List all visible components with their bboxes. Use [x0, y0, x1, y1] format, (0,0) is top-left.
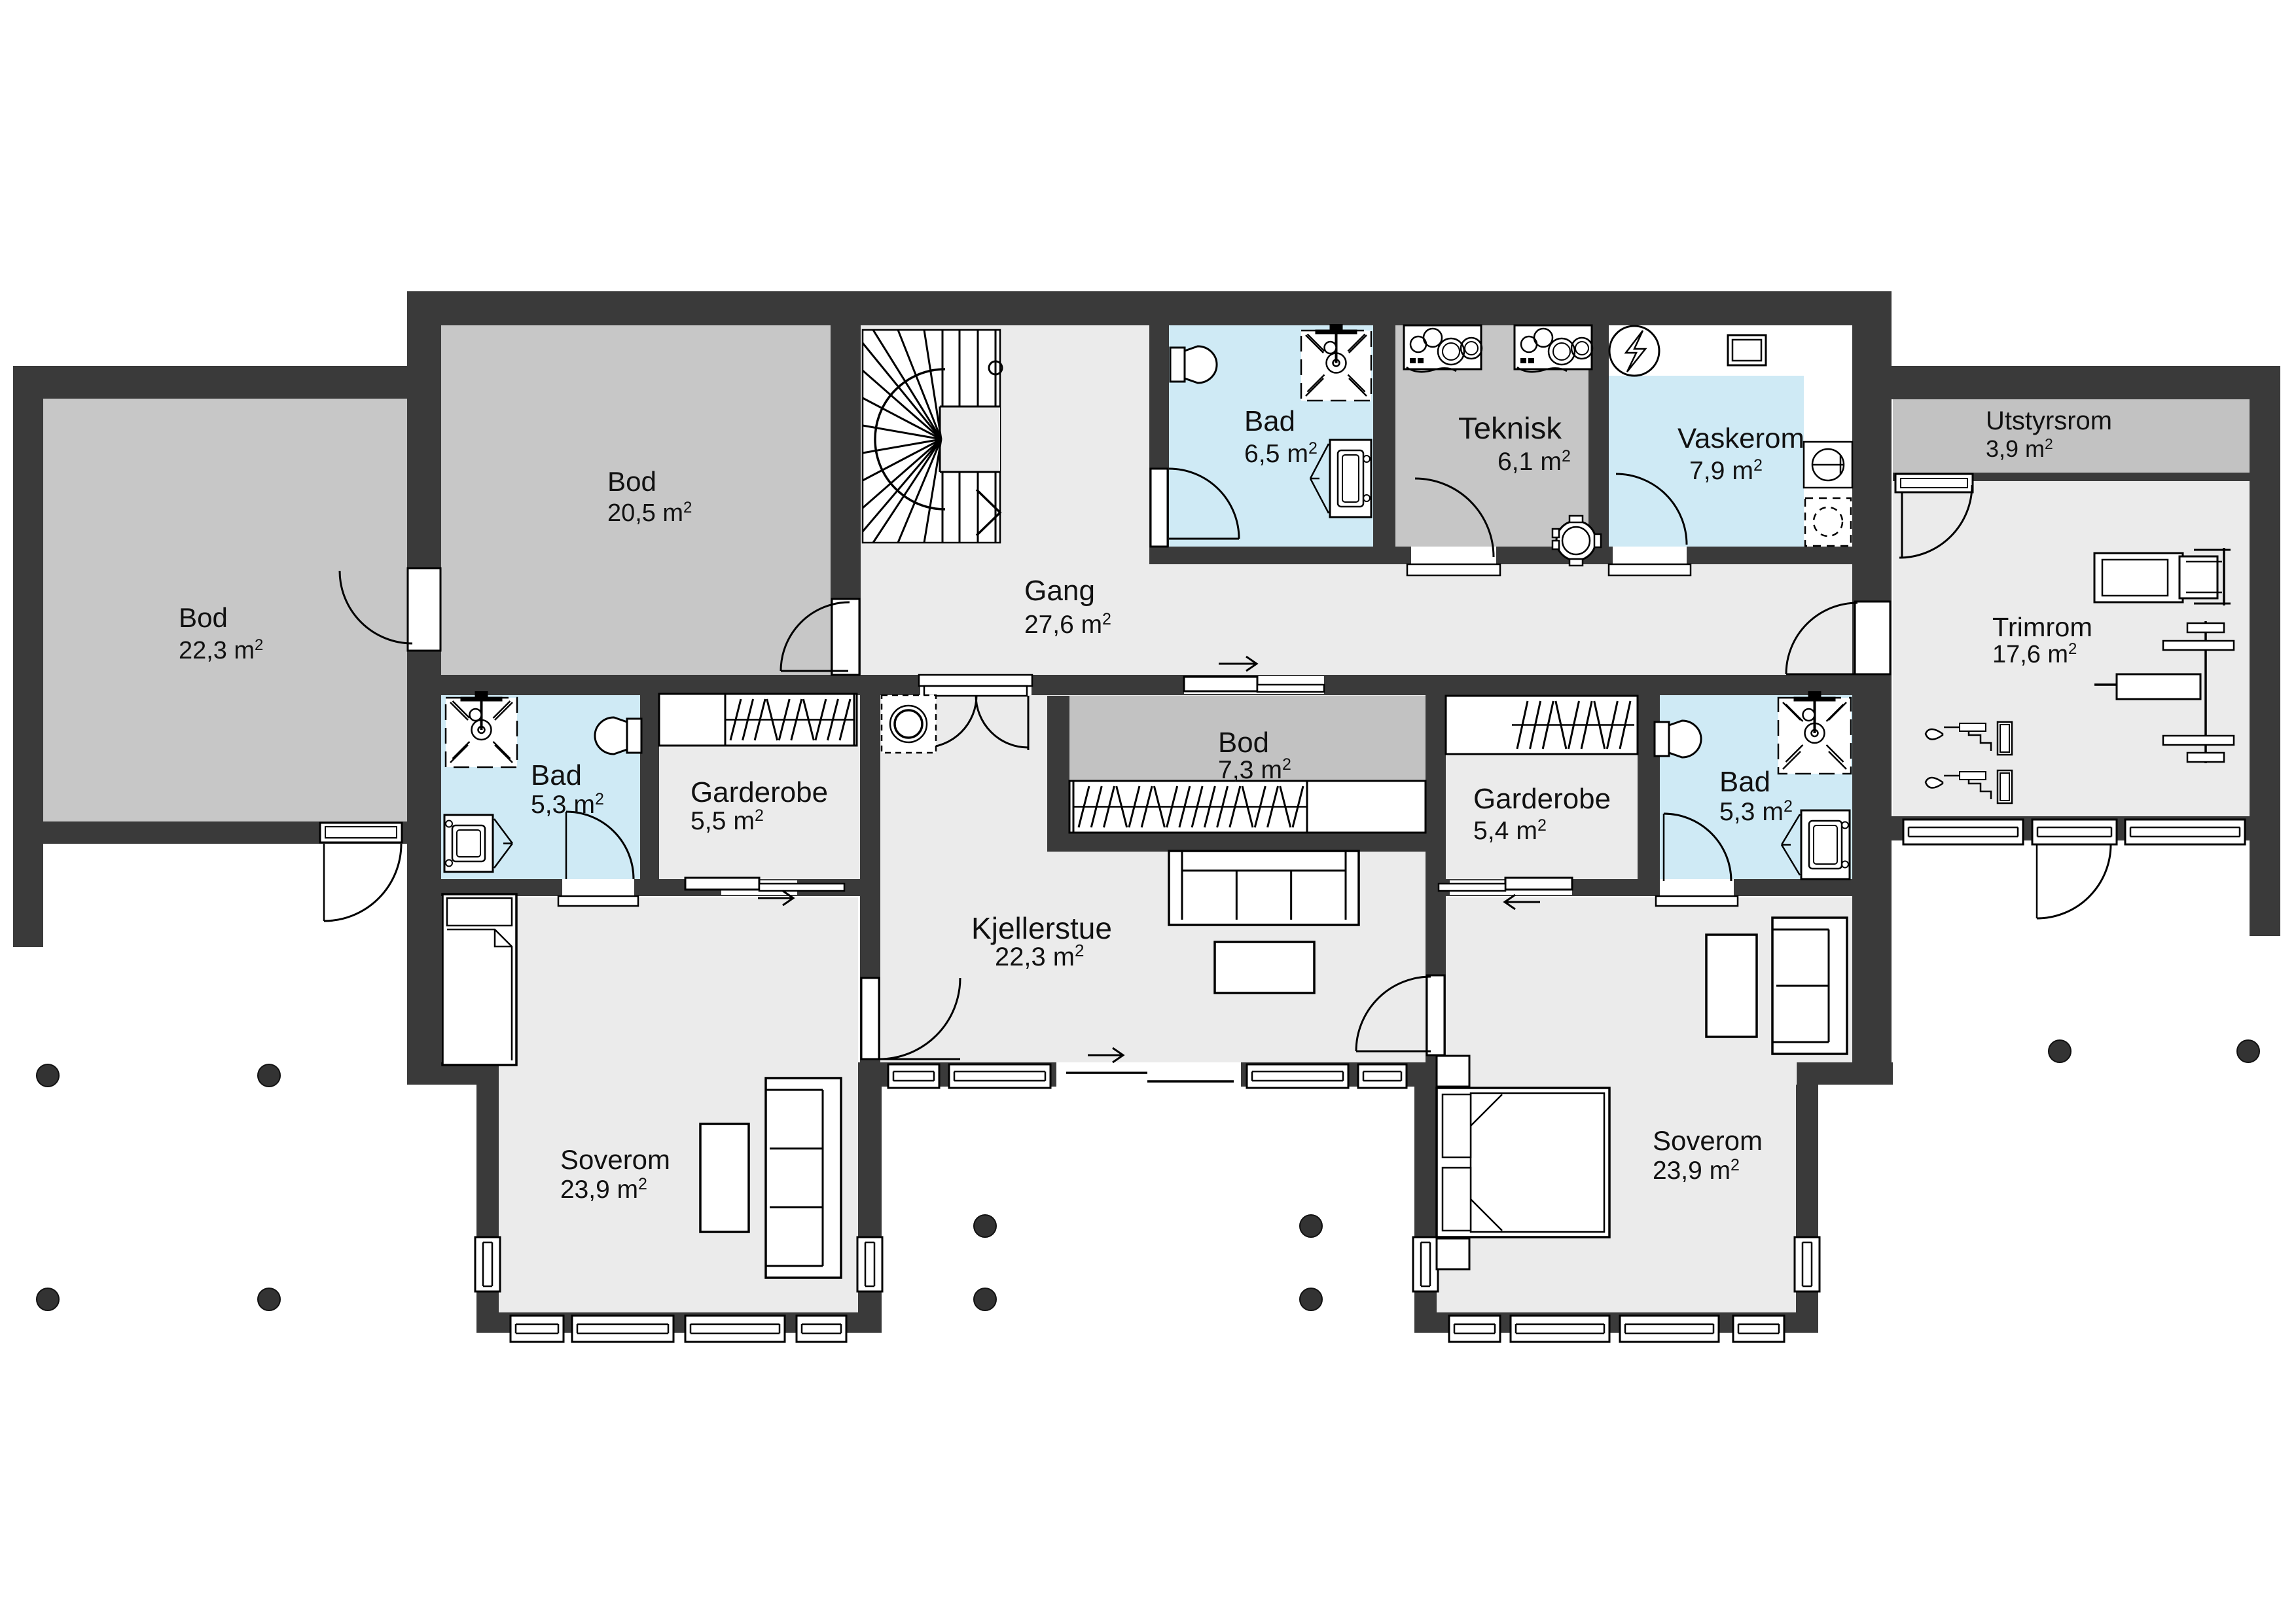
svg-text:20,5 m2: 20,5 m2 [607, 499, 692, 527]
svg-text:17,6 m2: 17,6 m2 [1992, 640, 2077, 668]
svg-text:Bod: Bod [607, 466, 656, 497]
svg-text:Kjellerstue: Kjellerstue [971, 911, 1112, 945]
svg-text:Vaskerom: Vaskerom [1677, 423, 1804, 454]
svg-text:Bad: Bad [531, 759, 582, 791]
svg-text:Soverom: Soverom [560, 1144, 670, 1175]
svg-text:5,3 m2: 5,3 m2 [1719, 797, 1793, 826]
svg-text:6,1 m2: 6,1 m2 [1498, 447, 1571, 476]
svg-text:22,3 m2: 22,3 m2 [995, 941, 1084, 971]
svg-text:Bad: Bad [1719, 766, 1770, 798]
svg-text:22,3 m2: 22,3 m2 [179, 636, 263, 664]
svg-text:7,9 m2: 7,9 m2 [1689, 456, 1763, 485]
svg-text:Bod: Bod [1218, 727, 1269, 759]
svg-text:6,5 m2: 6,5 m2 [1244, 439, 1318, 468]
svg-text:27,6 m2: 27,6 m2 [1024, 610, 1111, 639]
svg-text:3,9 m2: 3,9 m2 [1986, 435, 2053, 462]
svg-text:5,4 m2: 5,4 m2 [1473, 816, 1547, 845]
svg-text:Teknisk: Teknisk [1458, 411, 1562, 445]
svg-text:5,3 m2: 5,3 m2 [531, 790, 604, 819]
svg-text:Bod: Bod [179, 602, 228, 633]
svg-text:23,9 m2: 23,9 m2 [1653, 1156, 1740, 1185]
svg-text:Trimrom: Trimrom [1992, 612, 2092, 642]
svg-text:7,3 m2: 7,3 m2 [1218, 755, 1291, 784]
svg-text:Bad: Bad [1244, 405, 1295, 437]
svg-text:23,9 m2: 23,9 m2 [560, 1175, 647, 1204]
svg-text:Utstyrsrom: Utstyrsrom [1986, 406, 2112, 435]
svg-text:Gang: Gang [1024, 575, 1095, 607]
svg-text:Garderobe: Garderobe [1473, 783, 1611, 815]
svg-text:5,5 m2: 5,5 m2 [691, 806, 764, 835]
svg-text:Garderobe: Garderobe [691, 776, 828, 808]
svg-text:Soverom: Soverom [1653, 1125, 1763, 1156]
